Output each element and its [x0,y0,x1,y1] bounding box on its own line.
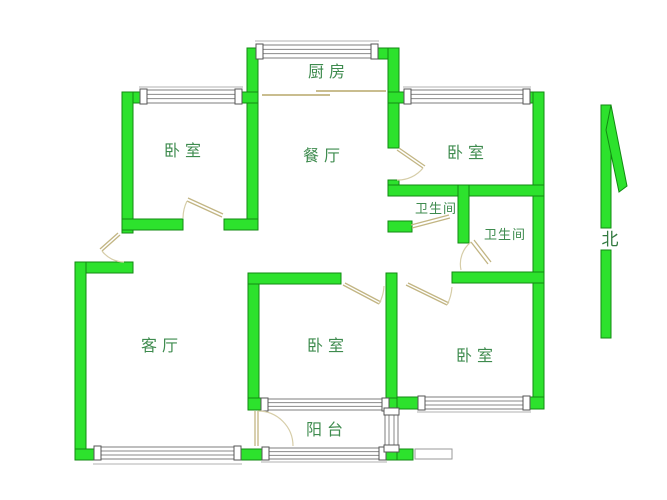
window [93,446,242,464]
window [403,87,531,104]
wall-segment [458,185,469,243]
window-cap [262,447,269,460]
wall-segment [224,219,258,230]
window-cap [94,446,101,460]
window [261,398,389,411]
window-cap [384,408,399,415]
window-cap [235,89,242,104]
window-cap [384,445,399,452]
room-label-bedroom-top-right: 卧室 [447,143,489,162]
door-leaf [397,150,423,168]
room-label-bathroom-2: 卫生间 [484,228,526,243]
window-cap [523,396,530,410]
wall-segment [122,92,133,233]
windows-layer [93,41,531,464]
door-leaf [102,235,120,251]
room-label-kitchen: 厨房 [308,62,350,81]
wall-segment [75,449,95,460]
door-leaf [408,283,449,303]
door-swing-arc [397,168,423,180]
window-cap [523,89,530,104]
window [417,396,531,412]
room-label-bedroom-bottom-middle: 卧室 [307,336,349,355]
door-leaf [100,233,118,249]
door-swing-arc [183,201,187,218]
window-frame [385,414,398,446]
door-leaf [188,198,223,214]
room-label-bedroom-bottom-right: 卧室 [456,346,498,365]
wall-segment [248,273,341,284]
door-swing-arc [460,242,471,270]
window-cap [404,89,411,104]
window-frame [424,397,524,409]
wall-segment [533,92,544,409]
room-label-dining: 餐厅 [303,146,345,165]
window-cap [261,398,268,411]
window [255,41,379,59]
window-cap [418,396,425,410]
window-frame [146,90,236,103]
door-leaf [187,201,222,217]
wall-segment [122,219,183,230]
room-label-balcony: 阳台 [306,420,348,439]
wall-segment [386,273,397,398]
north-arrow-bar [601,250,611,338]
door-leaf [343,285,379,304]
wall-segment [248,273,259,410]
exterior-ledge [415,449,452,459]
door-swing-arc [447,287,452,305]
window-frame [267,399,383,410]
door-leaf [474,240,491,262]
window [261,447,387,462]
window-cap [256,44,263,59]
window-cap [371,44,378,59]
door-leaf [345,283,381,302]
wall-segment [247,48,258,230]
door-leaf [399,148,425,166]
north-arrow [601,105,627,338]
north-label: 北 [602,230,619,250]
door-swing-arc [258,411,293,446]
door-leaf [406,285,447,305]
door-leaf [471,242,488,264]
doors-layer [100,91,491,446]
window-cap [234,446,241,460]
door-swing-arc [379,286,384,304]
room-label-bathroom-1: 卫生间 [415,202,457,217]
door-swing-arc [102,251,124,262]
wall-segment [388,221,412,232]
floor-plan-canvas: 厨房 卧室 餐厅 卧室 卫生间 卫生间 客厅 卧室 卧室 阳台 北 [0,0,667,500]
window-frame [100,447,235,459]
window-frame [262,45,372,58]
window [139,87,243,104]
window [384,408,399,452]
labels-layer: 厨房 卧室 餐厅 卧室 卫生间 卫生间 客厅 卧室 卧室 阳台 北 [141,62,619,439]
wall-segment [452,272,544,283]
room-label-bedroom-top-left: 卧室 [164,141,206,160]
room-label-living: 客厅 [141,336,183,355]
floor-plan: 厨房 卧室 餐厅 卧室 卫生间 卫生间 客厅 卧室 卧室 阳台 北 [0,0,667,500]
window-frame [268,448,380,459]
wall-segment [75,262,86,460]
window-cap [140,89,147,104]
window-frame [410,90,524,103]
